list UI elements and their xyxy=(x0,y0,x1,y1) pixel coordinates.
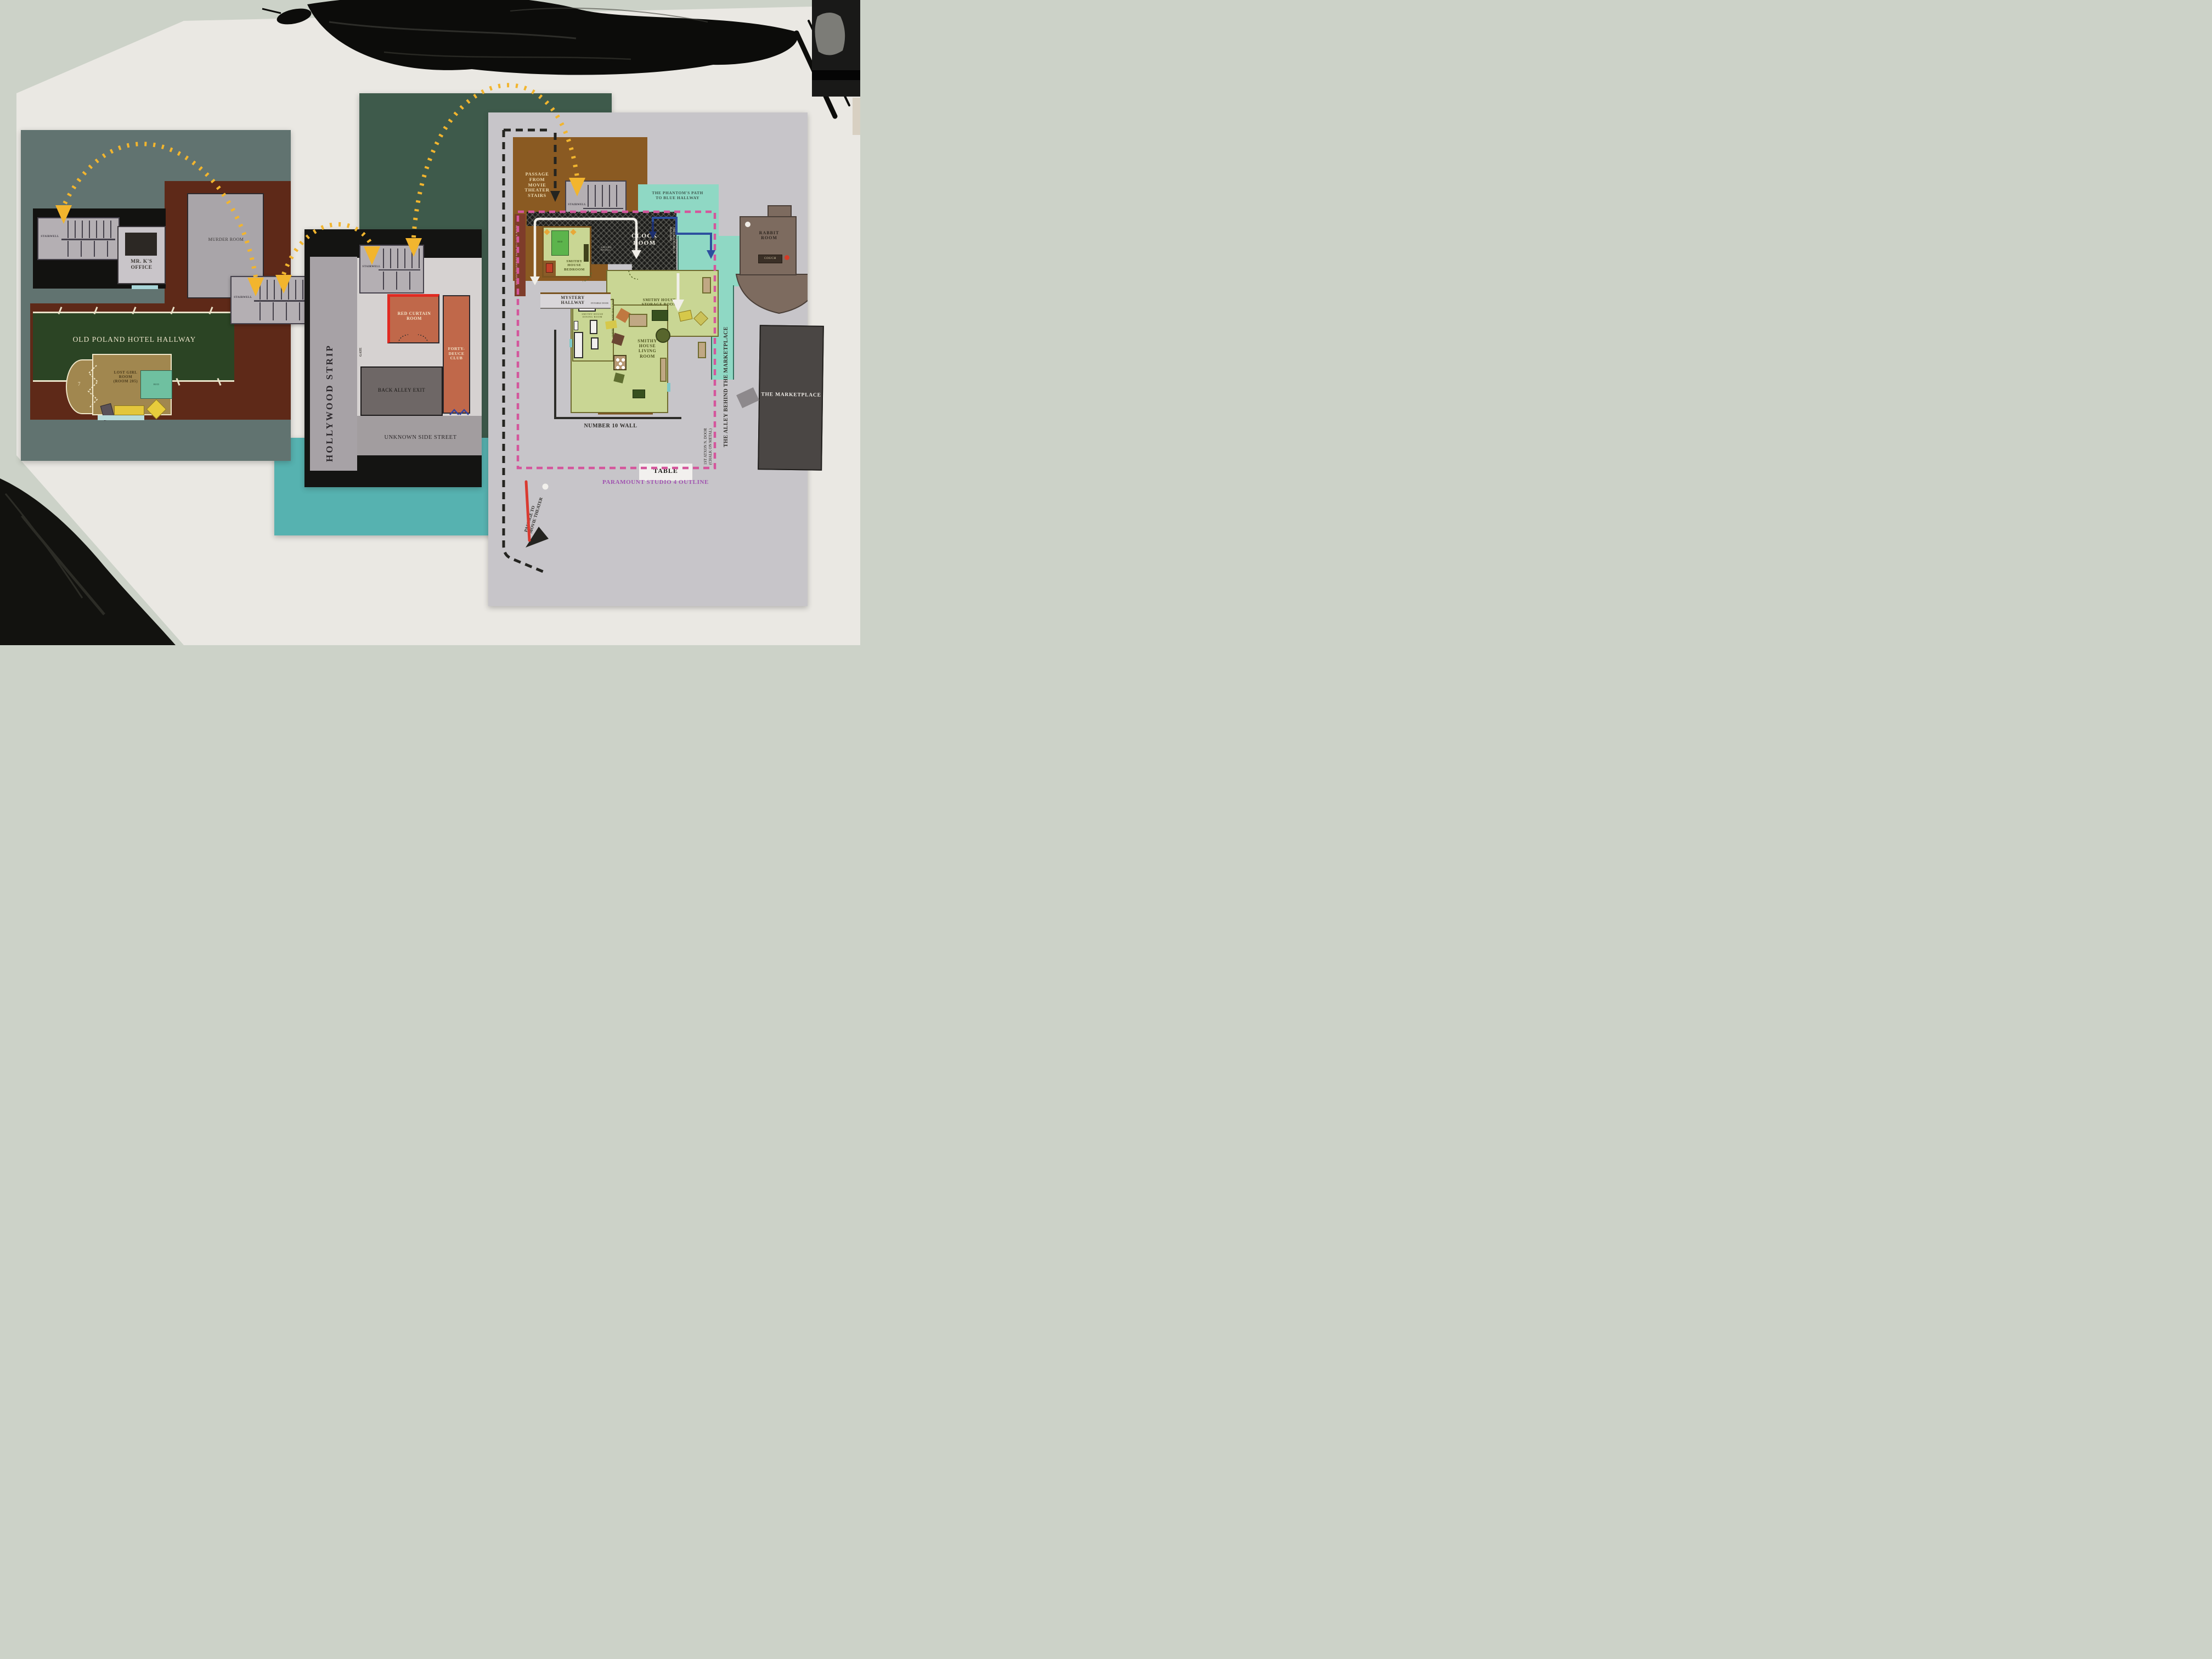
photo-of-game-maps: { "left_map": { "stairwell_top": "STAIRW… xyxy=(0,0,860,645)
annotations-overlay xyxy=(0,0,860,645)
